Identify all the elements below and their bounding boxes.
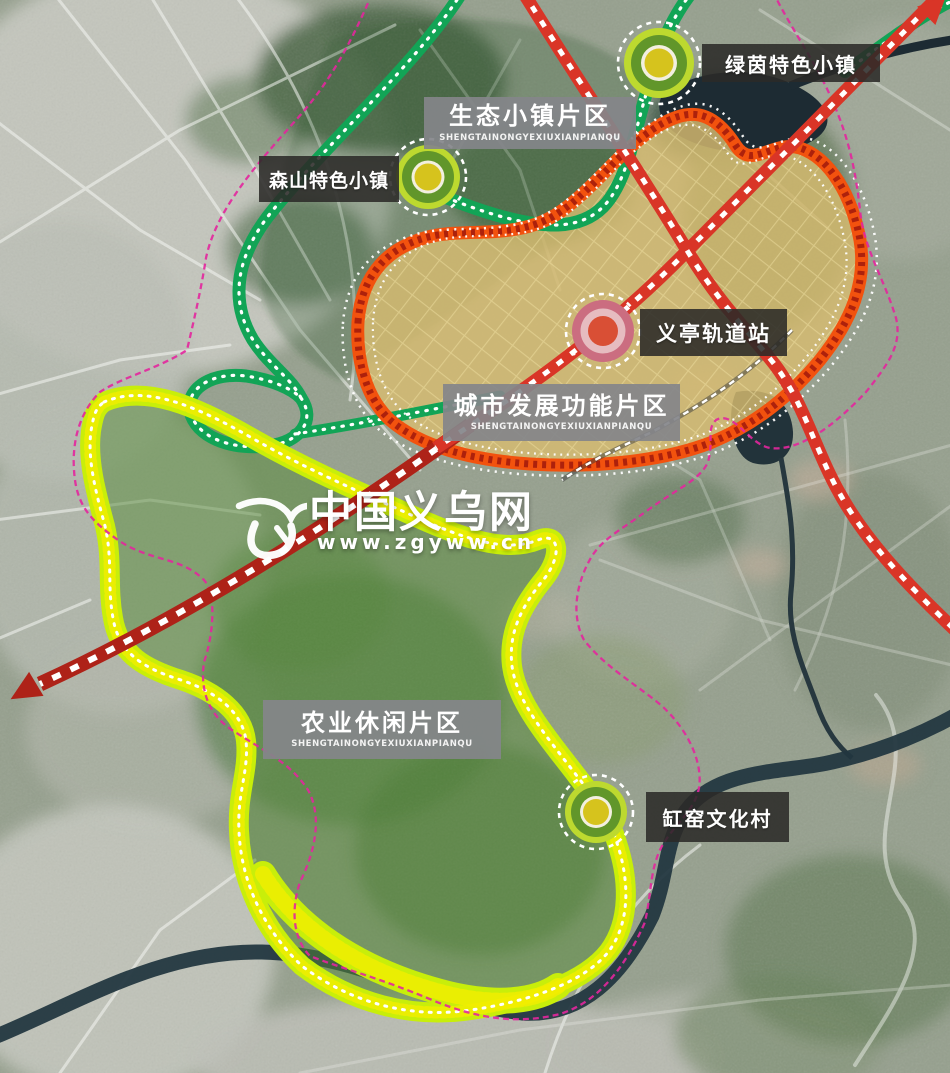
planning-map: 生态小镇片区 SHENGTAINONGYEXIUXIANPIANQU 城市发展功…: [0, 0, 950, 1073]
zone-label-agri-leisure: 农业休闲片区 SHENGTAINONGYEXIUXIANPIANQU: [263, 700, 501, 759]
marker-label-text: 义亭轨道站: [656, 318, 771, 348]
marker-label-text: 绿茵特色小镇: [725, 49, 857, 78]
zone-label-urban-development: 城市发展功能片区 SHENGTAINONGYEXIUXIANPIANQU: [443, 384, 680, 441]
zone-pinyin: SHENGTAINONGYEXIUXIANPIANQU: [291, 739, 473, 749]
zone-label-eco-town: 生态小镇片区 SHENGTAINONGYEXIUXIANPIANQU: [424, 97, 636, 149]
zone-title: 农业休闲片区: [301, 710, 463, 736]
marker-label-gangyao-village: 缸窑文化村: [646, 792, 789, 842]
zone-title: 城市发展功能片区: [454, 393, 670, 419]
watermark-site-url: www.zgyww.cn: [317, 530, 535, 554]
zgyww-logo-icon: [225, 484, 307, 562]
marker-label-senshan-town: 森山特色小镇: [259, 156, 399, 202]
marker-label-text: 缸窑文化村: [663, 803, 773, 832]
zone-pinyin: SHENGTAINONGYEXIUXIANPIANQU: [471, 422, 653, 432]
marker-label-lvyin-town: 绿茵特色小镇: [702, 44, 880, 82]
marker-label-text: 森山特色小镇: [269, 166, 389, 193]
zone-title: 生态小镇片区: [449, 103, 611, 129]
zone-pinyin: SHENGTAINONGYEXIUXIANPIANQU: [439, 133, 621, 143]
marker-label-yiting-station: 义亭轨道站: [640, 309, 787, 356]
watermark: 中国义乌网 www.zgyww.cn: [225, 478, 565, 573]
